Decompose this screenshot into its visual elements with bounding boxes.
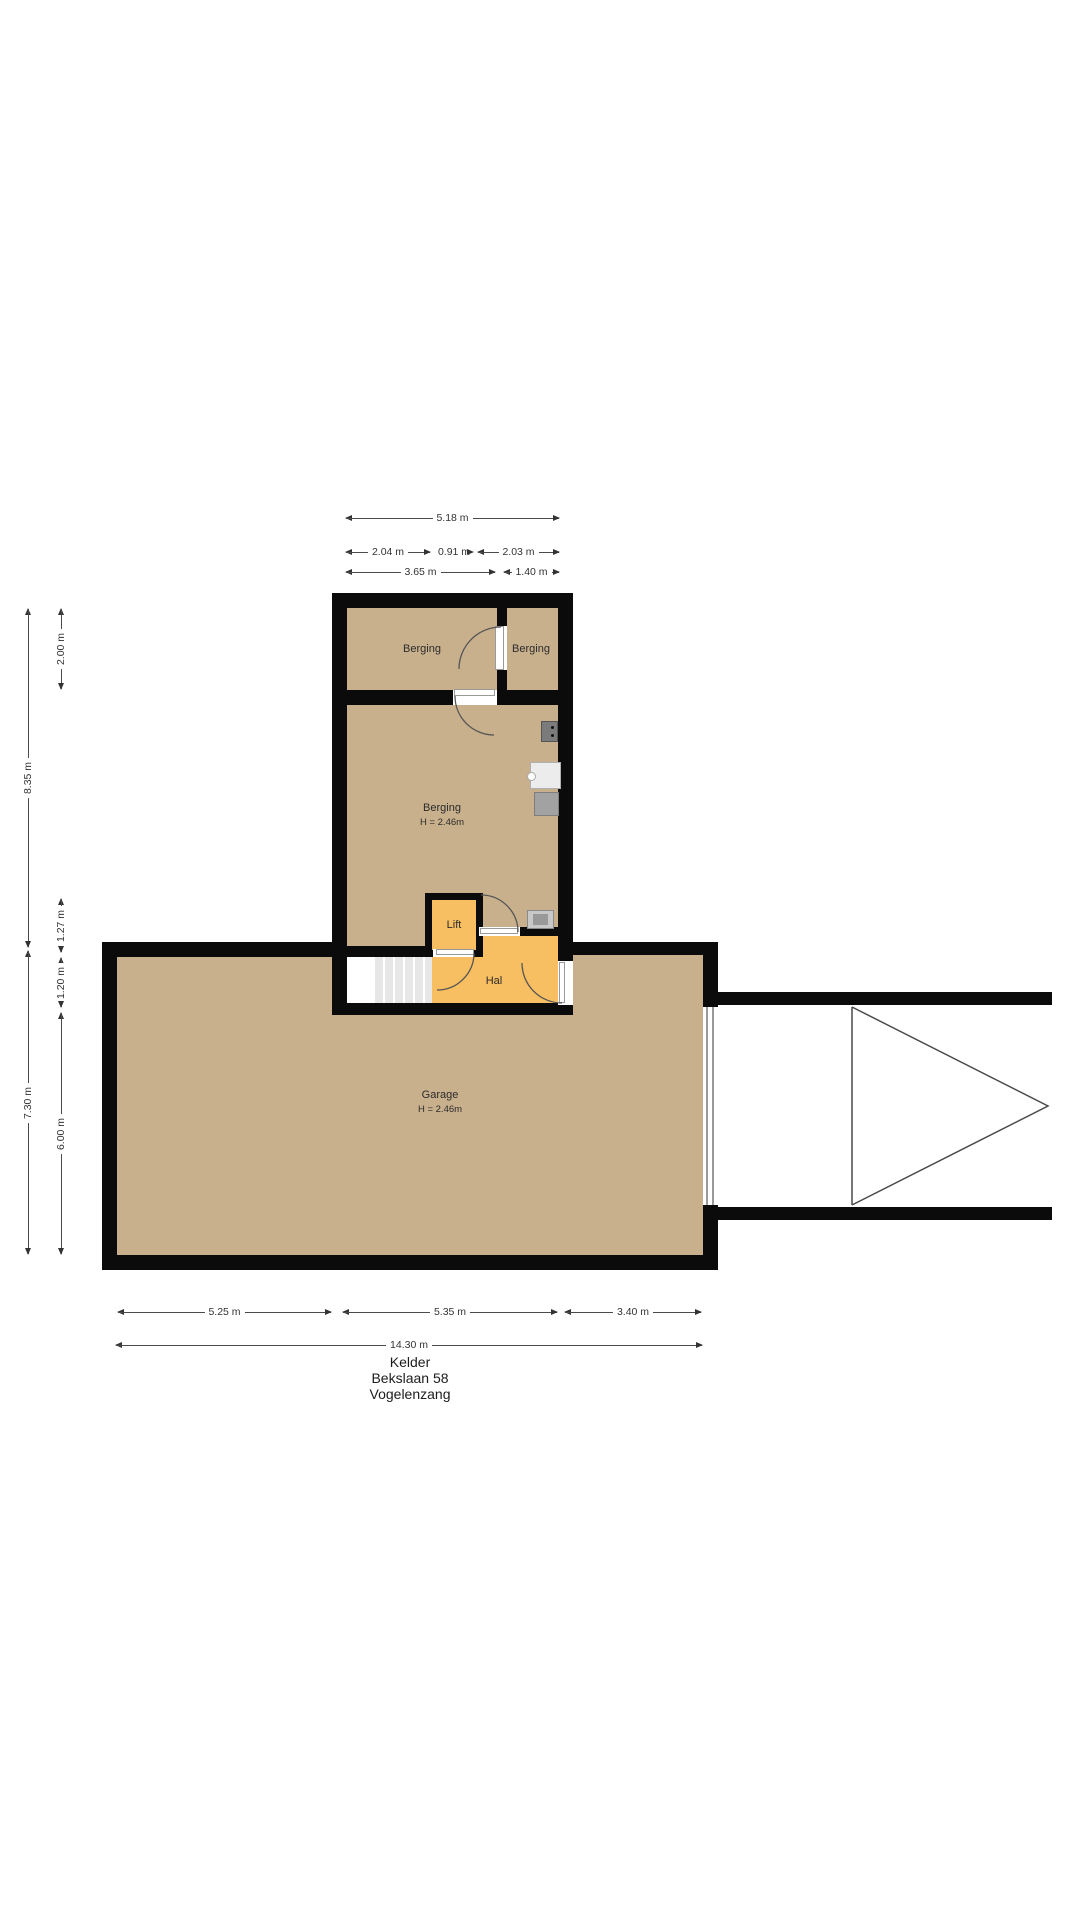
dimension-left-c: 1.20 m [54, 957, 68, 1008]
dimension-left-total-upper: 8.35 m [21, 608, 35, 948]
washer-fixture [530, 762, 561, 789]
dimension-value: 14.30 m [386, 1339, 432, 1351]
title-city: Vogelenzang [310, 1386, 510, 1402]
dimension-left-a: 2.00 m [54, 608, 68, 690]
dimension-top-total: 5.18 m [345, 511, 560, 525]
dimension-value: 8.35 m [22, 758, 34, 798]
washer-knob [527, 772, 536, 781]
dimension-top-a: 2.04 m [345, 545, 431, 559]
room-label-lift: Lift [429, 919, 479, 933]
dimension-bottom-total: 14.30 m [115, 1338, 703, 1352]
stair-treads [375, 957, 432, 1003]
staircase [347, 957, 432, 1003]
wall-garage-right-upper [703, 955, 718, 1007]
wall-garage-bottom [102, 1255, 718, 1270]
door-lift [436, 949, 474, 955]
dimension-top-c: 2.03 m [477, 545, 560, 559]
door-hal-top [480, 928, 518, 934]
dimension-value: 1.27 m [55, 905, 67, 945]
wall-driveway-bottom [718, 1207, 1052, 1220]
dimension-value: 6.00 m [55, 1113, 67, 1153]
dimension-value: 2.04 m [368, 546, 408, 558]
dimension-bottom-c: 3.40 m [564, 1305, 702, 1319]
dimension-left-d: 6.00 m [54, 1012, 68, 1255]
wall-garage-top-right [573, 942, 718, 955]
room-name: Berging [423, 802, 461, 814]
room-height: H = 2.46m [420, 817, 464, 828]
title-block: Kelder Bekslaan 58 Vogelenzang [310, 1354, 510, 1402]
dimension-value: 1.20 m [55, 962, 67, 1002]
dimension-value: 5.35 m [430, 1306, 470, 1318]
room-label-hal: Hal [464, 975, 524, 989]
meter-dot [551, 734, 554, 737]
dimension-bottom-b: 5.35 m [342, 1305, 558, 1319]
dimension-value: 3.40 m [613, 1306, 653, 1318]
room-label-berging-top-right: Berging [501, 643, 561, 657]
title-floor: Kelder [310, 1354, 510, 1370]
dimension-bottom-a: 5.25 m [117, 1305, 332, 1319]
meter-dot [551, 726, 554, 729]
dimension-value: 3.65 m [400, 566, 440, 578]
wall-garage-left [102, 942, 117, 1270]
sink-basin [533, 914, 548, 925]
room-label-garage: Garage H = 2.46m [380, 1089, 500, 1117]
dimension-value: 2.00 m [55, 629, 67, 669]
room-name: Berging [403, 643, 441, 655]
dimension-value: 0.91 m [434, 546, 474, 558]
wall-driveway-top [718, 992, 1052, 1005]
wall-garage-right-lower [703, 1205, 718, 1270]
dimension-left-b: 1.27 m [54, 898, 68, 953]
meter-box-fixture [541, 721, 558, 742]
dryer-fixture [534, 792, 559, 816]
wall-stairs-top [347, 946, 432, 957]
garage-door [706, 1007, 714, 1205]
room-label-berging-main: Berging H = 2.46m [382, 802, 502, 830]
dimension-value: 7.30 m [22, 1082, 34, 1122]
title-address: Bekslaan 58 [310, 1370, 510, 1386]
wall-garage-top-left [102, 942, 332, 957]
dimension-top-d: 3.65 m [345, 565, 496, 579]
room-label-berging-top-left: Berging [372, 643, 472, 657]
dimension-value: 5.25 m [204, 1306, 244, 1318]
room-name: Hal [486, 975, 503, 987]
dimension-top-e: 1.40 m [503, 565, 560, 579]
wall-column-bottom [332, 1003, 573, 1015]
dimension-value: 2.03 m [498, 546, 538, 558]
dimension-top-b: 0.91 m [434, 545, 474, 559]
room-height: H = 2.46m [418, 1104, 462, 1115]
door-berging-main [454, 689, 495, 696]
door-hal-right [559, 962, 565, 1003]
wall-column-top [332, 593, 573, 608]
dimension-value: 1.40 m [511, 566, 551, 578]
wall-column-left [332, 593, 347, 1010]
room-name: Berging [512, 643, 550, 655]
floorplan-canvas: Berging Berging Berging H = 2.46m Lift H… [0, 0, 1080, 1920]
dimension-left-total-lower: 7.30 m [21, 950, 35, 1255]
sink-fixture [527, 910, 554, 929]
dimension-value: 5.18 m [432, 512, 472, 524]
room-name: Garage [422, 1089, 459, 1101]
room-name: Lift [447, 919, 462, 931]
driveway-arrow [852, 1007, 1048, 1205]
